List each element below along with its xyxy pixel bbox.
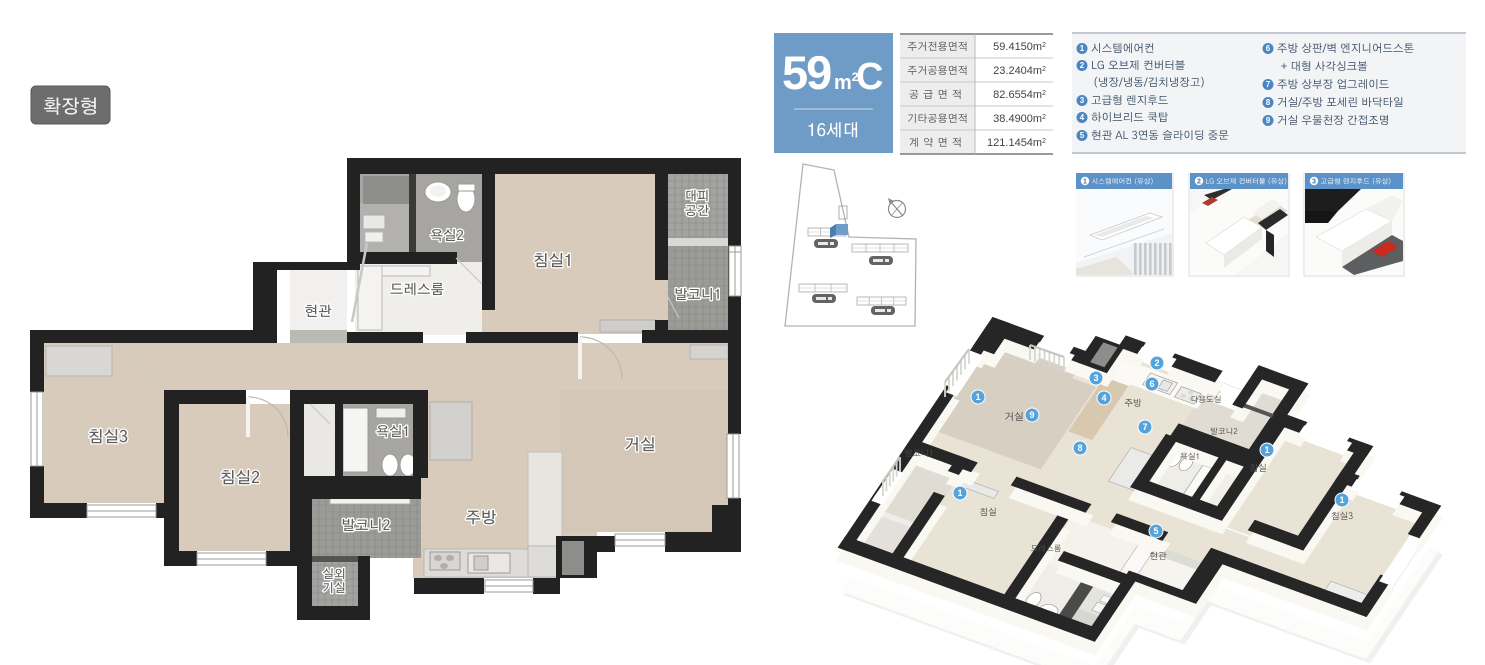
svg-text:5: 5	[1153, 526, 1158, 536]
svg-text:3: 3	[1093, 373, 1098, 383]
svg-text:1: 1	[975, 392, 980, 402]
svg-text:4: 4	[1101, 393, 1106, 403]
svg-text:6: 6	[1149, 379, 1154, 389]
svg-text:1: 1	[1264, 445, 1269, 455]
svg-text:7: 7	[1142, 422, 1147, 432]
svg-text:9: 9	[1029, 410, 1034, 420]
svg-text:8: 8	[1077, 443, 1082, 453]
svg-text:2: 2	[1154, 358, 1159, 368]
svg-text:1: 1	[957, 488, 962, 498]
svg-text:1: 1	[1339, 495, 1344, 505]
